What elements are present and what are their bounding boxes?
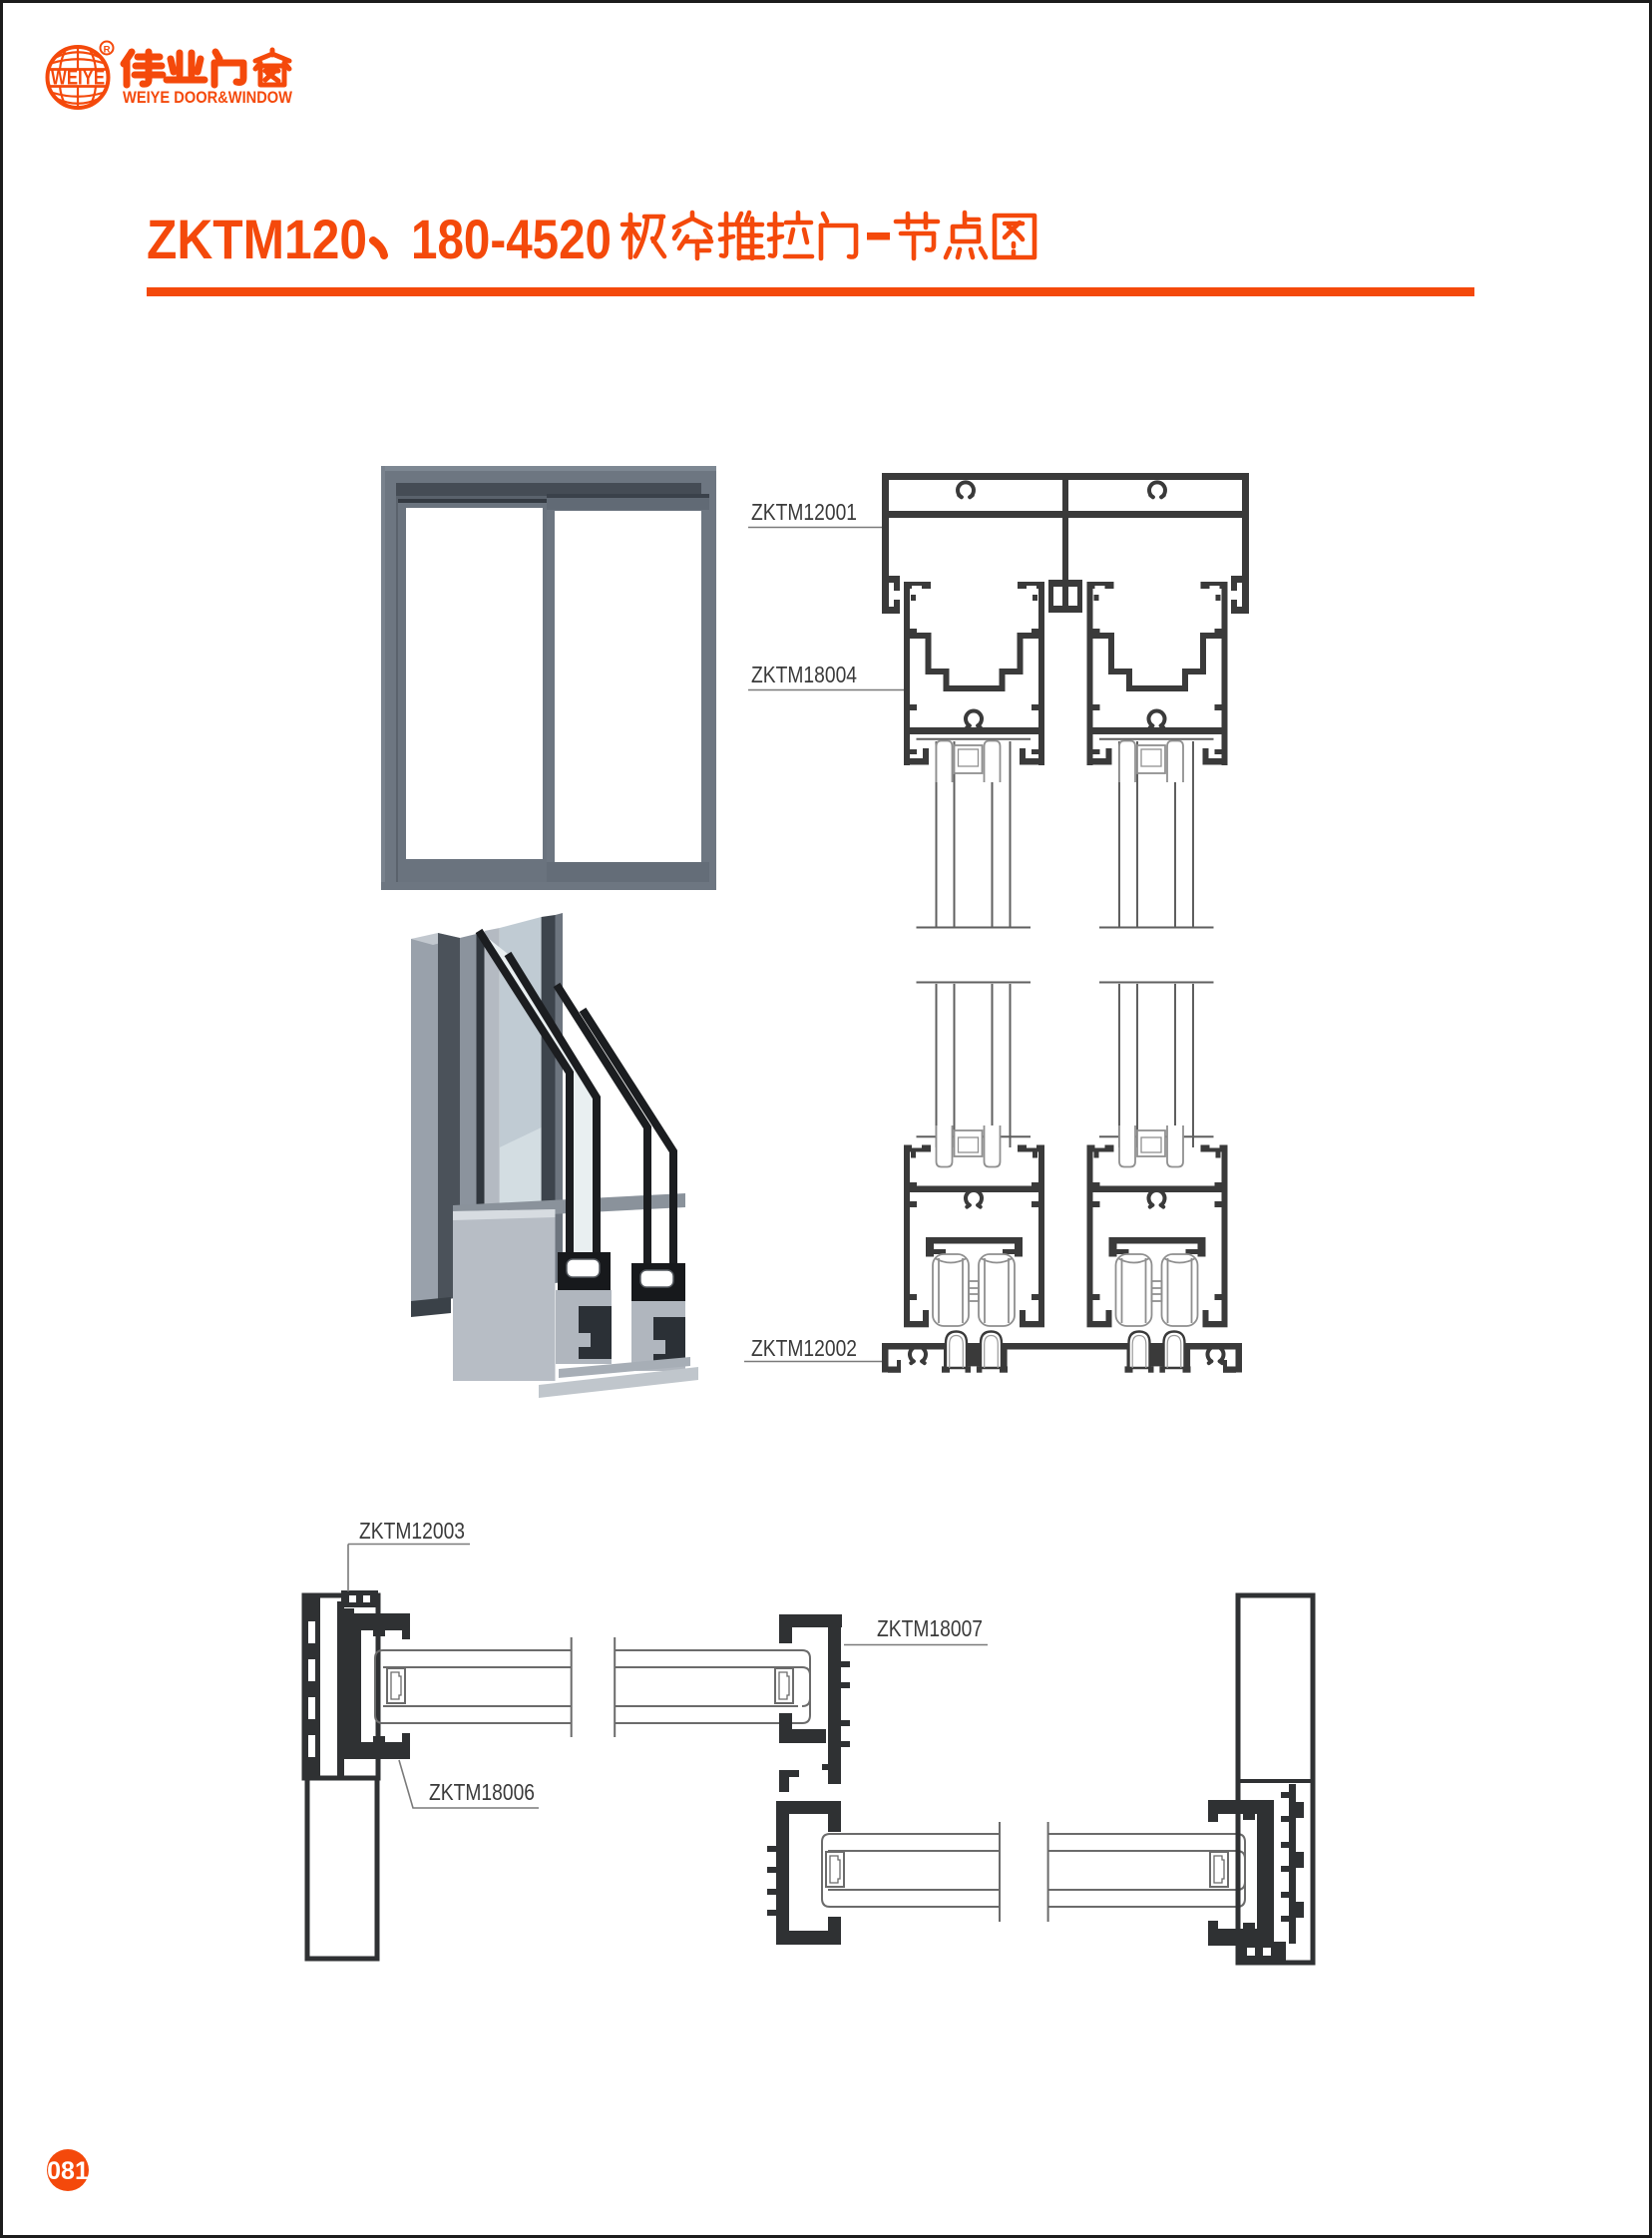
svg-text:R: R <box>104 45 111 56</box>
svg-text:WEIYE: WEIYE <box>51 66 105 90</box>
svg-text:180-4520: 180-4520 <box>411 208 612 270</box>
svg-text:ZKTM12002: ZKTM12002 <box>751 1335 857 1361</box>
svg-text:081: 081 <box>47 2157 89 2185</box>
svg-text:WEIYE DOOR&WINDOW: WEIYE DOOR&WINDOW <box>123 89 292 107</box>
svg-text:ZKTM18006: ZKTM18006 <box>429 1779 535 1805</box>
svg-text:ZKTM18004: ZKTM18004 <box>751 662 857 687</box>
svg-text:ZKTM120: ZKTM120 <box>147 208 367 270</box>
svg-text:ZKTM18007: ZKTM18007 <box>877 1615 983 1641</box>
svg-text:ZKTM12001: ZKTM12001 <box>751 499 857 525</box>
svg-text:ZKTM12003: ZKTM12003 <box>359 1518 465 1544</box>
